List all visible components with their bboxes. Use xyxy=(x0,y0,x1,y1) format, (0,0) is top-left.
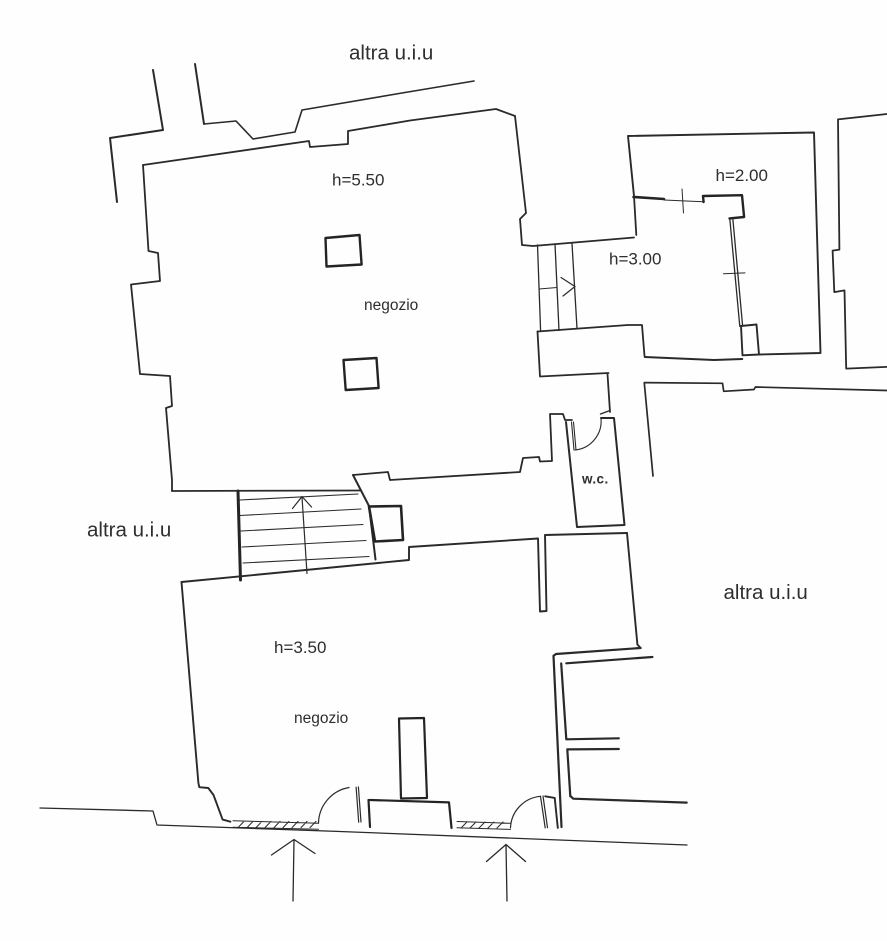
svg-text:altra u.i.u: altra u.i.u xyxy=(724,581,808,604)
svg-text:negozio: negozio xyxy=(294,710,348,727)
svg-text:altra u.i.u: altra u.i.u xyxy=(87,519,171,542)
svg-text:h=3.00: h=3.00 xyxy=(609,250,661,269)
svg-text:altra u.i.u: altra u.i.u xyxy=(349,42,433,65)
svg-text:w.c.: w.c. xyxy=(581,472,609,487)
svg-text:h=5.50: h=5.50 xyxy=(332,171,384,190)
svg-text:h=2.00: h=2.00 xyxy=(716,166,768,185)
svg-text:negozio: negozio xyxy=(364,297,418,314)
svg-text:h=3.50: h=3.50 xyxy=(274,638,326,657)
